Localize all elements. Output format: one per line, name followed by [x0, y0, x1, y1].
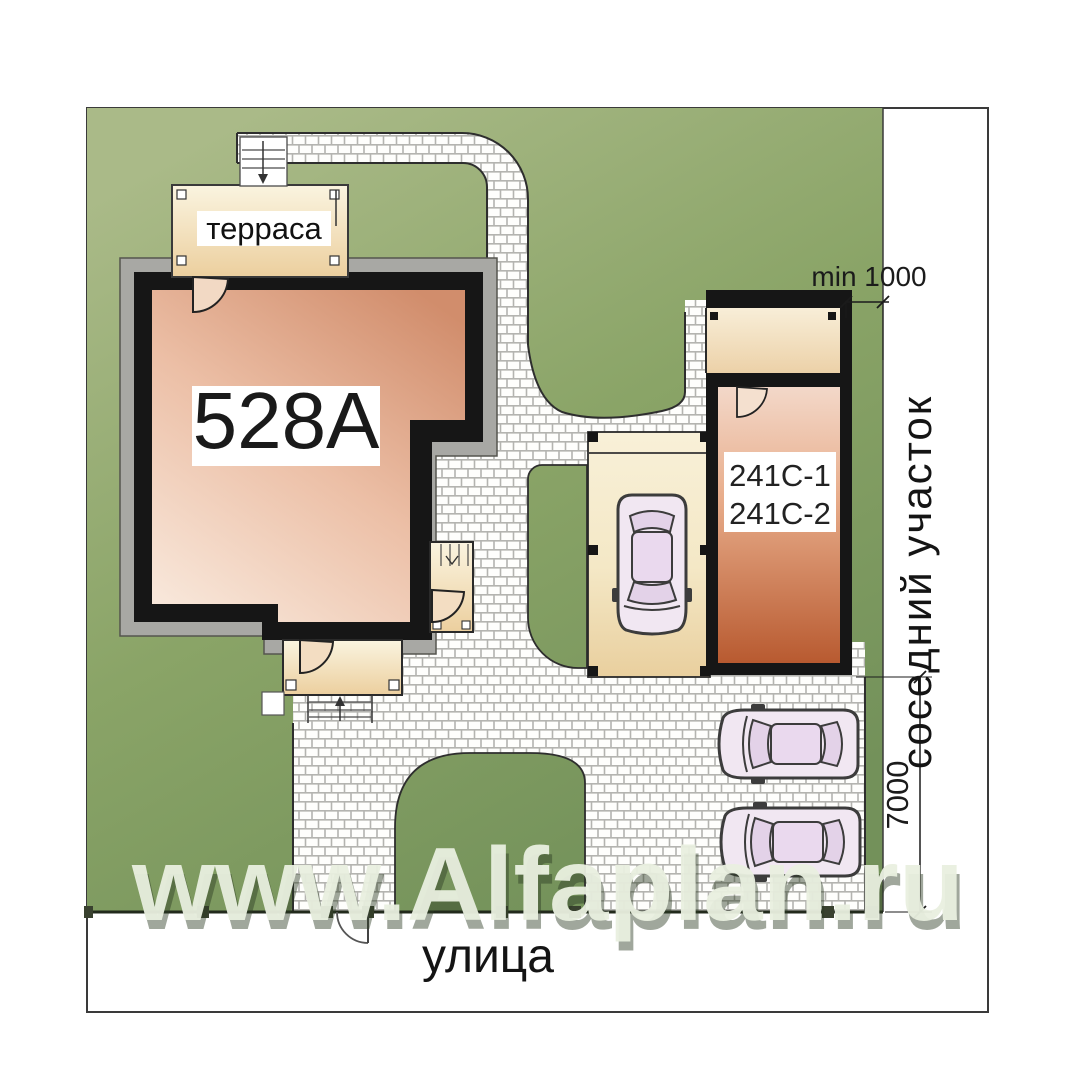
- terrace-label: терраса: [206, 211, 322, 246]
- frontage-dim-label: 7000: [880, 761, 915, 830]
- garage: 241C-1 241C-2: [706, 290, 852, 675]
- watermark: www.Alfaplan.ru www.Alfaplan.ru: [131, 827, 967, 952]
- house-number-label: 528A: [193, 376, 380, 465]
- garage-model-1-label: 241C-1: [729, 458, 831, 493]
- parked-car-1: [719, 704, 858, 784]
- garage-model-2-label: 241C-2: [729, 496, 831, 531]
- side-landing: [262, 692, 284, 715]
- carport: [588, 432, 710, 677]
- site-plan-drawing: терраса 528A: [0, 0, 1080, 1080]
- terrace: терраса: [172, 185, 348, 277]
- neighbor-plot-label: соседний участок: [893, 395, 940, 769]
- watermark-text: www.Alfaplan.ru: [131, 827, 964, 943]
- lawn-strip-carport: [528, 465, 587, 668]
- site-plan: терраса 528A: [0, 0, 1080, 1080]
- lawn-center: [528, 312, 685, 418]
- terrace-steps: [240, 137, 287, 186]
- setback-dim-label: min 1000: [811, 261, 926, 292]
- garage-forecourt: [706, 308, 840, 373]
- side-porch: [430, 542, 473, 632]
- carport-car: [612, 495, 692, 634]
